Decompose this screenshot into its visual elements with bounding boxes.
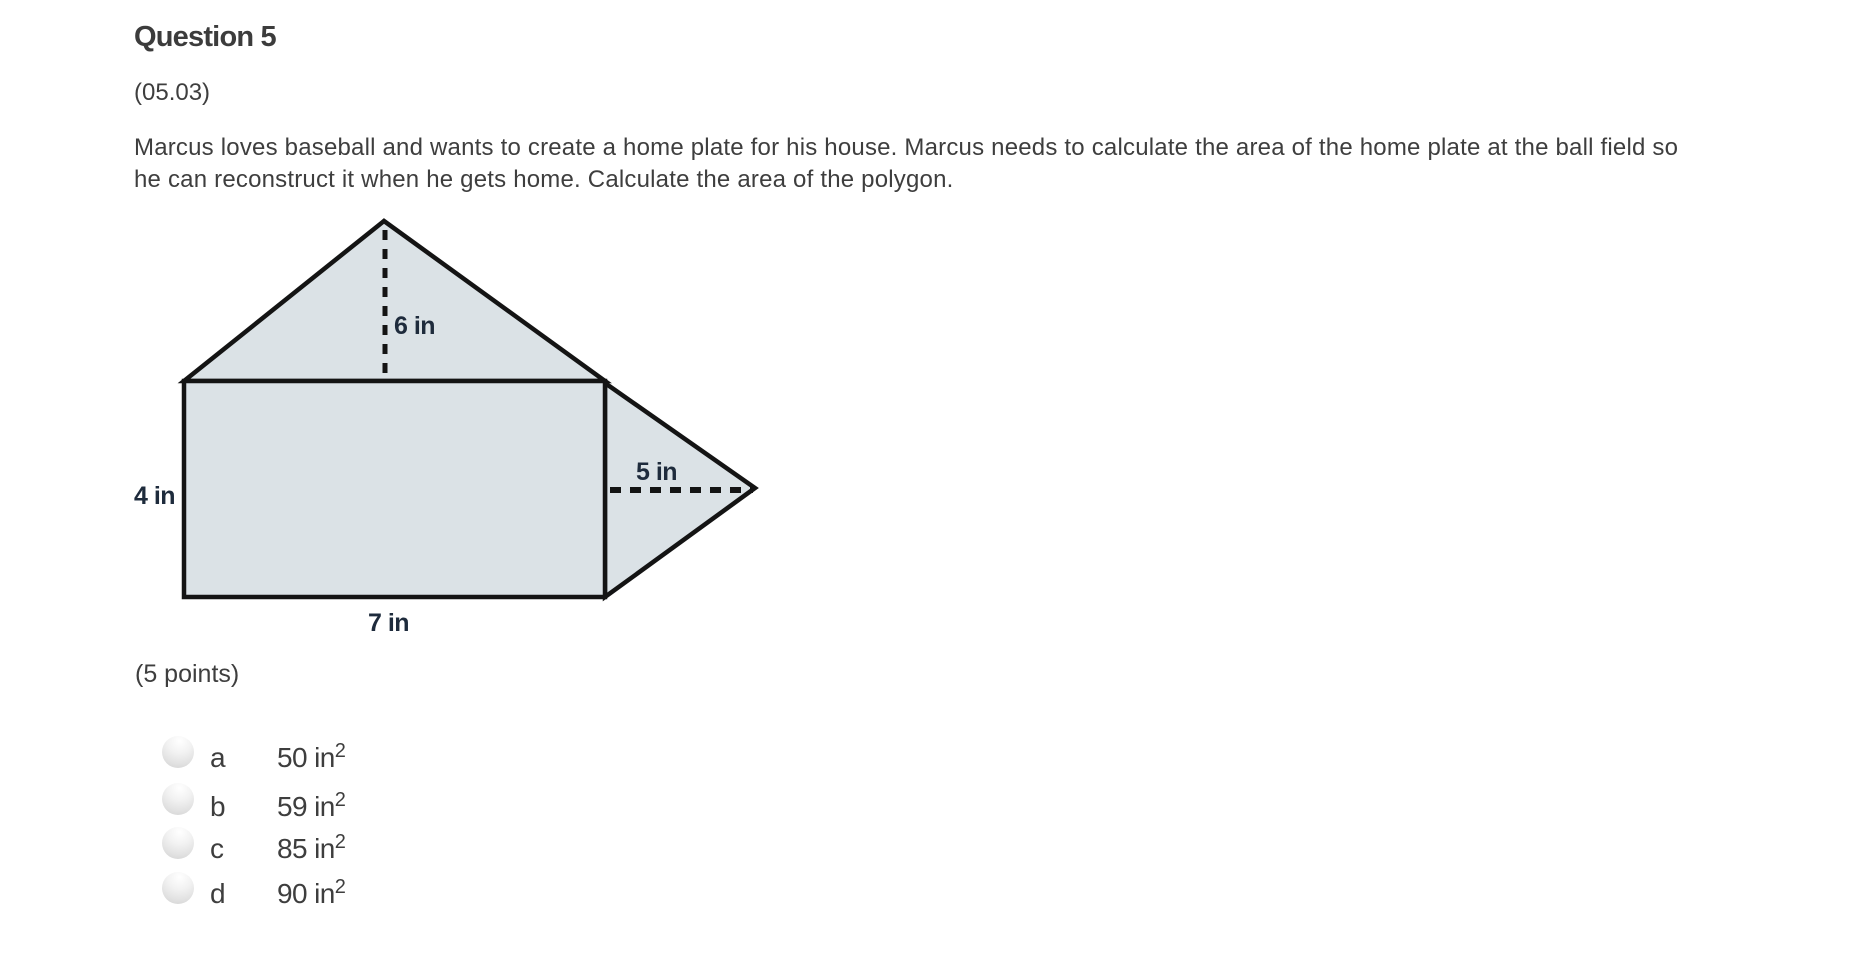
svg-text:5 in: 5 in	[636, 458, 677, 486]
svg-text:4 in: 4 in	[134, 482, 175, 510]
svg-text:7 in: 7 in	[368, 609, 409, 637]
svg-text:6 in: 6 in	[394, 312, 435, 340]
